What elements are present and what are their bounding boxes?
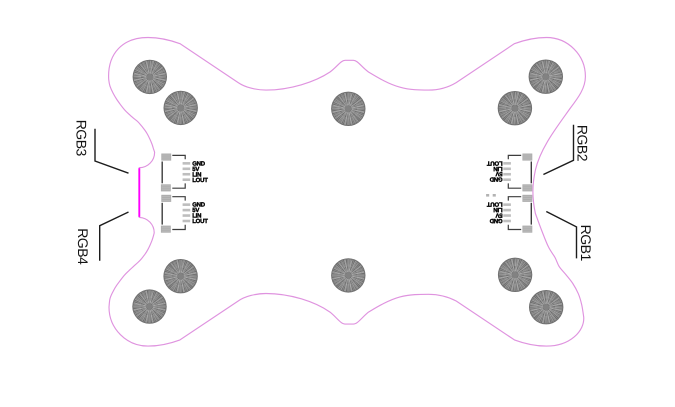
svg-text:LOUT: LOUT bbox=[192, 177, 208, 184]
svg-text:RGB2: RGB2 bbox=[575, 125, 591, 162]
svg-text:RGB1: RGB1 bbox=[578, 225, 594, 262]
svg-text:LOUT: LOUT bbox=[192, 218, 208, 225]
svg-text:GND: GND bbox=[489, 217, 503, 224]
svg-text:GND: GND bbox=[489, 176, 503, 183]
svg-text:RGB4: RGB4 bbox=[75, 228, 91, 265]
svg-text:RGB3: RGB3 bbox=[74, 120, 90, 157]
